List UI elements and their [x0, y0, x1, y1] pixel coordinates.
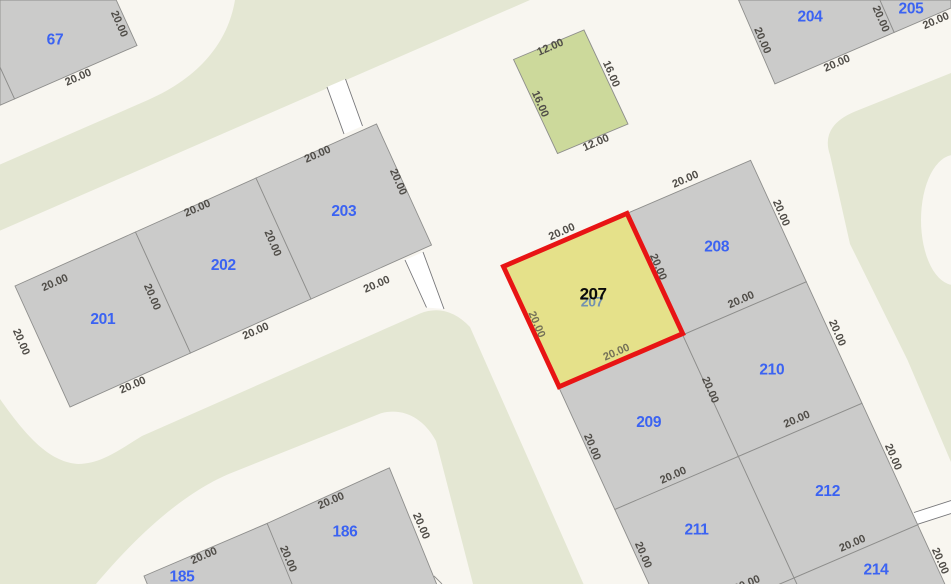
svg-text:185: 185: [170, 569, 196, 584]
svg-text:209: 209: [636, 414, 662, 431]
svg-text:203: 203: [331, 203, 357, 220]
svg-text:207: 207: [580, 285, 607, 304]
svg-text:214: 214: [864, 562, 890, 579]
svg-text:210: 210: [759, 361, 784, 378]
svg-text:208: 208: [704, 239, 730, 256]
svg-text:205: 205: [899, 1, 925, 18]
svg-text:212: 212: [815, 483, 840, 500]
svg-text:204: 204: [798, 9, 824, 26]
svg-text:67: 67: [47, 32, 64, 49]
svg-text:202: 202: [211, 257, 236, 274]
svg-text:211: 211: [684, 522, 709, 539]
svg-text:186: 186: [333, 524, 359, 541]
svg-text:201: 201: [90, 311, 116, 328]
